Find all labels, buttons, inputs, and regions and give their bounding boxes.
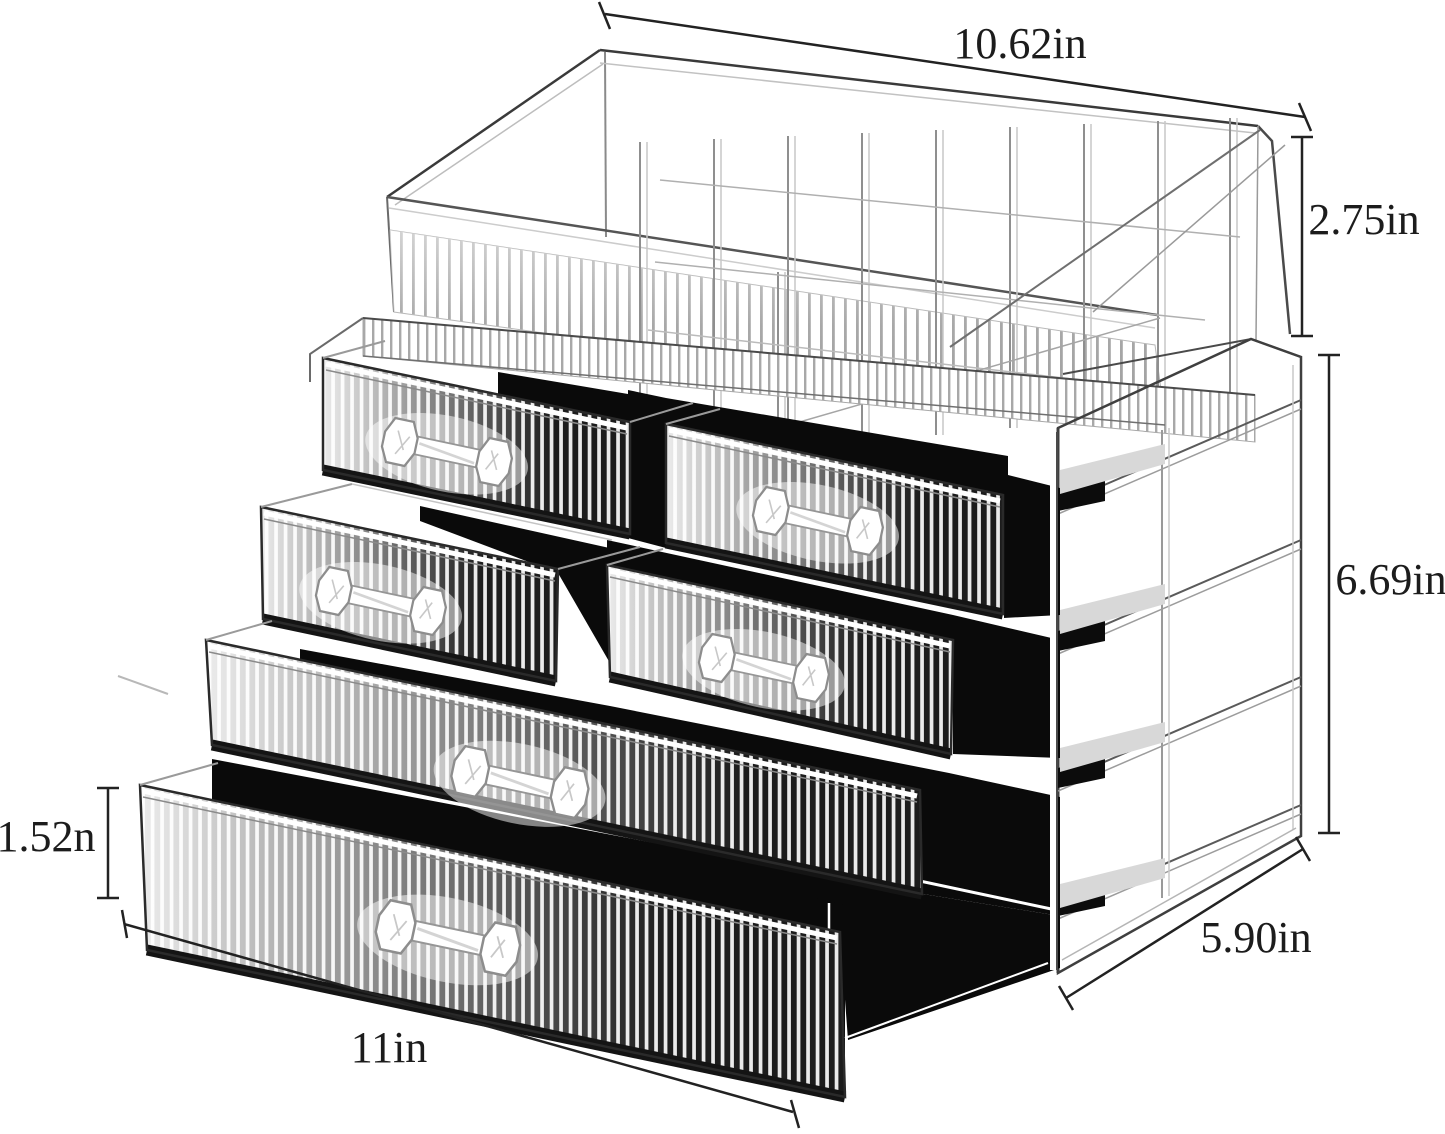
svg-text:5.90in: 5.90in bbox=[1200, 913, 1311, 962]
svg-text:11in: 11in bbox=[351, 1023, 428, 1072]
svg-text:2.75in: 2.75in bbox=[1308, 195, 1419, 244]
svg-text:6.69in: 6.69in bbox=[1335, 555, 1445, 604]
svg-text:10.62in: 10.62in bbox=[953, 19, 1086, 68]
svg-text:1.52n: 1.52n bbox=[0, 812, 96, 861]
